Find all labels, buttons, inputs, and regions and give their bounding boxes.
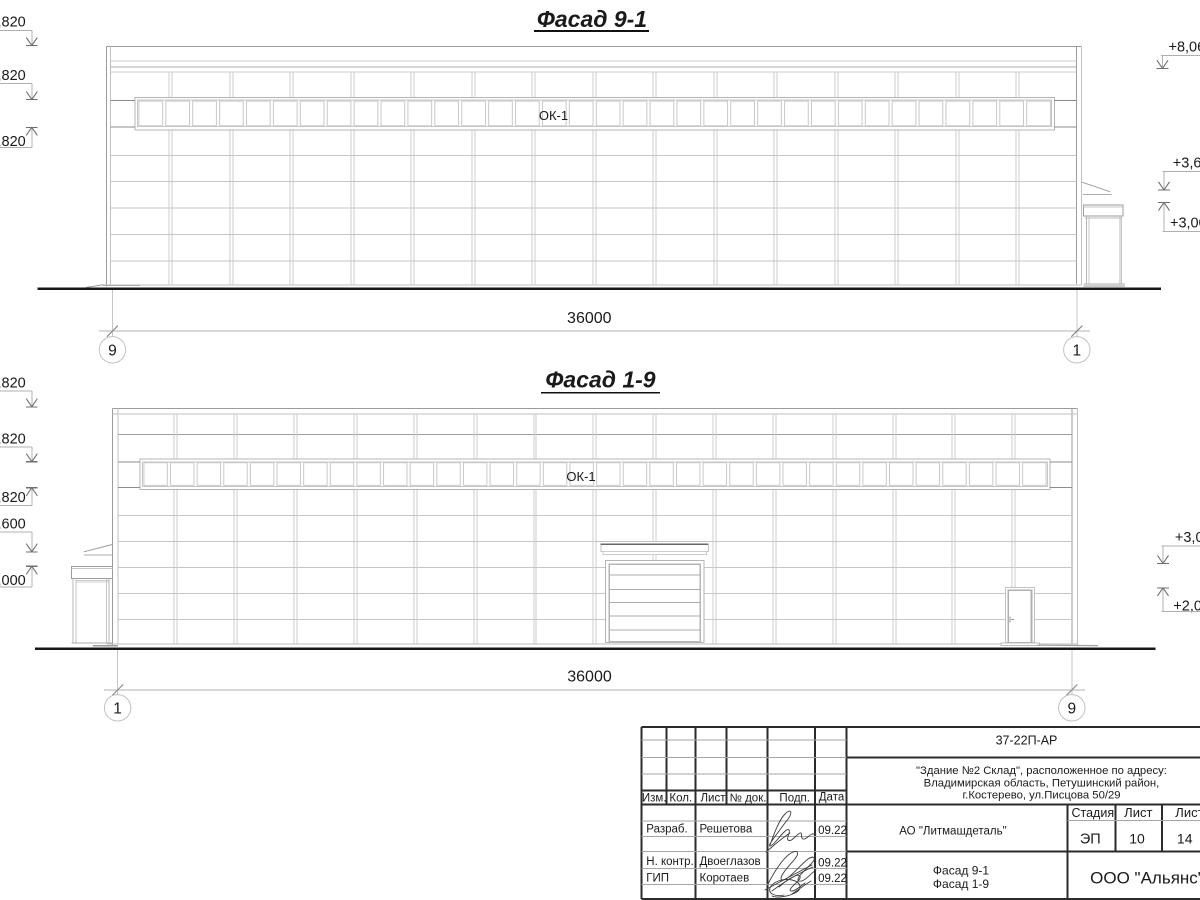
svg-text:г.Костерево, ул.Писцова 50/29: г.Костерево, ул.Писцова 50/29 [962,790,1120,802]
svg-text:№ док.: № док. [730,793,767,805]
svg-text:ООО "Альянс": ООО "Альянс" [1090,868,1200,887]
svg-text:,820: ,820 [0,15,26,31]
svg-text:10: 10 [1129,830,1145,846]
svg-text:Двоеглазов: Двоеглазов [700,856,761,868]
svg-text:Кол.: Кол. [669,793,692,805]
svg-text:+3,0: +3,0 [1175,530,1200,546]
svg-text:Подп.: Подп. [779,793,810,805]
svg-text:,820: ,820 [0,68,26,84]
svg-text:ОК-1: ОК-1 [539,108,568,123]
svg-text:АО "Литмашдеталь": АО "Литмашдеталь" [899,825,1006,837]
svg-text:Владимирская область, Петушинс: Владимирская область, Петушинский район, [924,777,1160,789]
svg-text:+3,60: +3,60 [1173,156,1200,172]
svg-text:+8,06: +8,06 [1169,40,1200,56]
svg-text:Изм.: Изм. [642,793,667,805]
svg-text:,820: ,820 [0,432,26,448]
svg-text:9: 9 [1067,700,1076,717]
svg-text:Лист: Лист [1124,805,1152,820]
svg-text:1: 1 [113,700,122,717]
svg-text:14: 14 [1177,830,1193,846]
svg-text:09.22: 09.22 [818,857,847,869]
svg-text:36000: 36000 [567,669,612,686]
svg-text:,820: ,820 [0,490,26,506]
svg-text:Лист: Лист [701,793,727,805]
svg-text:,820: ,820 [0,376,26,392]
svg-text:Разраб.: Разраб. [646,824,687,836]
svg-text:ЭП: ЭП [1080,831,1101,847]
svg-text:36000: 36000 [567,310,612,327]
svg-text:Коротаев: Коротаев [700,872,750,884]
svg-text:1: 1 [1072,342,1081,359]
svg-text:Фасад 9-1: Фасад 9-1 [537,6,647,32]
svg-text:Листов: Листов [1175,805,1200,820]
svg-text:9: 9 [108,342,117,359]
svg-text:+3,00: +3,00 [1170,215,1200,231]
svg-text:37-22П-АР: 37-22П-АР [996,734,1058,748]
svg-text:,600: ,600 [0,517,26,533]
svg-text:Фасад 9-1: Фасад 9-1 [933,864,989,878]
svg-text:Фасад 1-9: Фасад 1-9 [933,877,989,891]
svg-text:09.22: 09.22 [818,873,847,885]
svg-text:Дата: Дата [819,792,845,804]
svg-text:"Здание №2 Склад", расположенн: "Здание №2 Склад", расположенное по адре… [916,765,1167,777]
svg-text:ГИП: ГИП [646,872,669,884]
svg-text:Стадия: Стадия [1071,806,1114,820]
svg-text:Фасад 1-9: Фасад 1-9 [545,367,655,393]
svg-text:ОК-1: ОК-1 [566,469,595,484]
svg-text:Решетова: Решетова [700,824,753,836]
svg-text:Н. контр.: Н. контр. [646,856,693,868]
svg-text:09.22: 09.22 [818,825,847,837]
